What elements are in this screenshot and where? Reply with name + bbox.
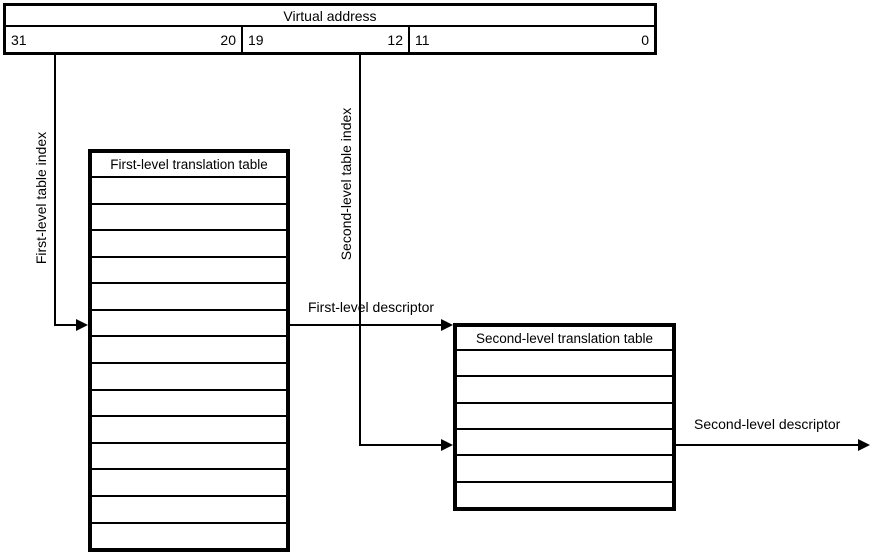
table-row bbox=[457, 483, 672, 507]
second-level-index-label: Second-level table index bbox=[338, 99, 354, 269]
table-row bbox=[92, 205, 286, 232]
virtual-address-box: Virtual address 31 20 19 12 11 0 bbox=[3, 3, 657, 55]
second-level-table-rows bbox=[457, 351, 672, 507]
table-row bbox=[92, 311, 286, 338]
table-row bbox=[92, 444, 286, 471]
table-row bbox=[92, 524, 286, 549]
va-field-19-12: 19 12 bbox=[243, 27, 410, 52]
table-row bbox=[92, 178, 286, 205]
table-row bbox=[92, 231, 286, 258]
first-level-table-title: First-level translation table bbox=[92, 153, 286, 178]
second-index-line-vertical bbox=[359, 55, 361, 445]
table-row bbox=[92, 391, 286, 418]
bit-high-label: 11 bbox=[415, 32, 430, 48]
table-row bbox=[457, 351, 672, 377]
table-row bbox=[92, 258, 286, 285]
virtual-address-title: Virtual address bbox=[6, 6, 654, 27]
bit-low-label: 0 bbox=[641, 32, 649, 48]
table-row bbox=[457, 456, 672, 482]
second-level-translation-table: Second-level translation table bbox=[453, 323, 676, 511]
table-row bbox=[92, 417, 286, 444]
virtual-address-fields: 31 20 19 12 11 0 bbox=[6, 27, 654, 52]
bit-low-label: 12 bbox=[387, 32, 403, 48]
second-descriptor-arrowhead-icon bbox=[858, 439, 870, 451]
bit-low-label: 20 bbox=[220, 32, 236, 48]
bit-high-label: 31 bbox=[11, 32, 27, 48]
table-row bbox=[457, 377, 672, 403]
table-row bbox=[92, 364, 286, 391]
first-descriptor-arrowhead-icon bbox=[441, 319, 453, 331]
second-index-arrowhead-icon bbox=[441, 439, 453, 451]
diagram-canvas: Virtual address 31 20 19 12 11 0 First-l… bbox=[0, 0, 874, 556]
first-level-translation-table: First-level translation table bbox=[88, 149, 290, 552]
bit-high-label: 19 bbox=[248, 32, 264, 48]
table-row bbox=[92, 337, 286, 364]
second-level-table-title: Second-level translation table bbox=[457, 327, 672, 351]
table-row bbox=[92, 497, 286, 524]
table-row bbox=[92, 284, 286, 311]
first-level-descriptor-label: First-level descriptor bbox=[308, 299, 434, 315]
va-field-11-0: 11 0 bbox=[410, 27, 654, 52]
table-row bbox=[457, 430, 672, 456]
first-level-index-label: First-level table index bbox=[33, 120, 49, 276]
second-index-line-horizontal bbox=[359, 444, 441, 446]
first-level-table-rows bbox=[92, 178, 286, 548]
first-index-line-horizontal bbox=[54, 324, 78, 326]
va-field-31-20: 31 20 bbox=[6, 27, 243, 52]
second-level-descriptor-label: Second-level descriptor bbox=[694, 416, 840, 432]
table-row bbox=[457, 404, 672, 430]
second-descriptor-line bbox=[676, 444, 858, 446]
table-row bbox=[92, 470, 286, 497]
first-index-arrowhead-icon bbox=[76, 319, 88, 331]
first-index-line-vertical bbox=[54, 55, 56, 325]
first-descriptor-line bbox=[290, 324, 441, 326]
